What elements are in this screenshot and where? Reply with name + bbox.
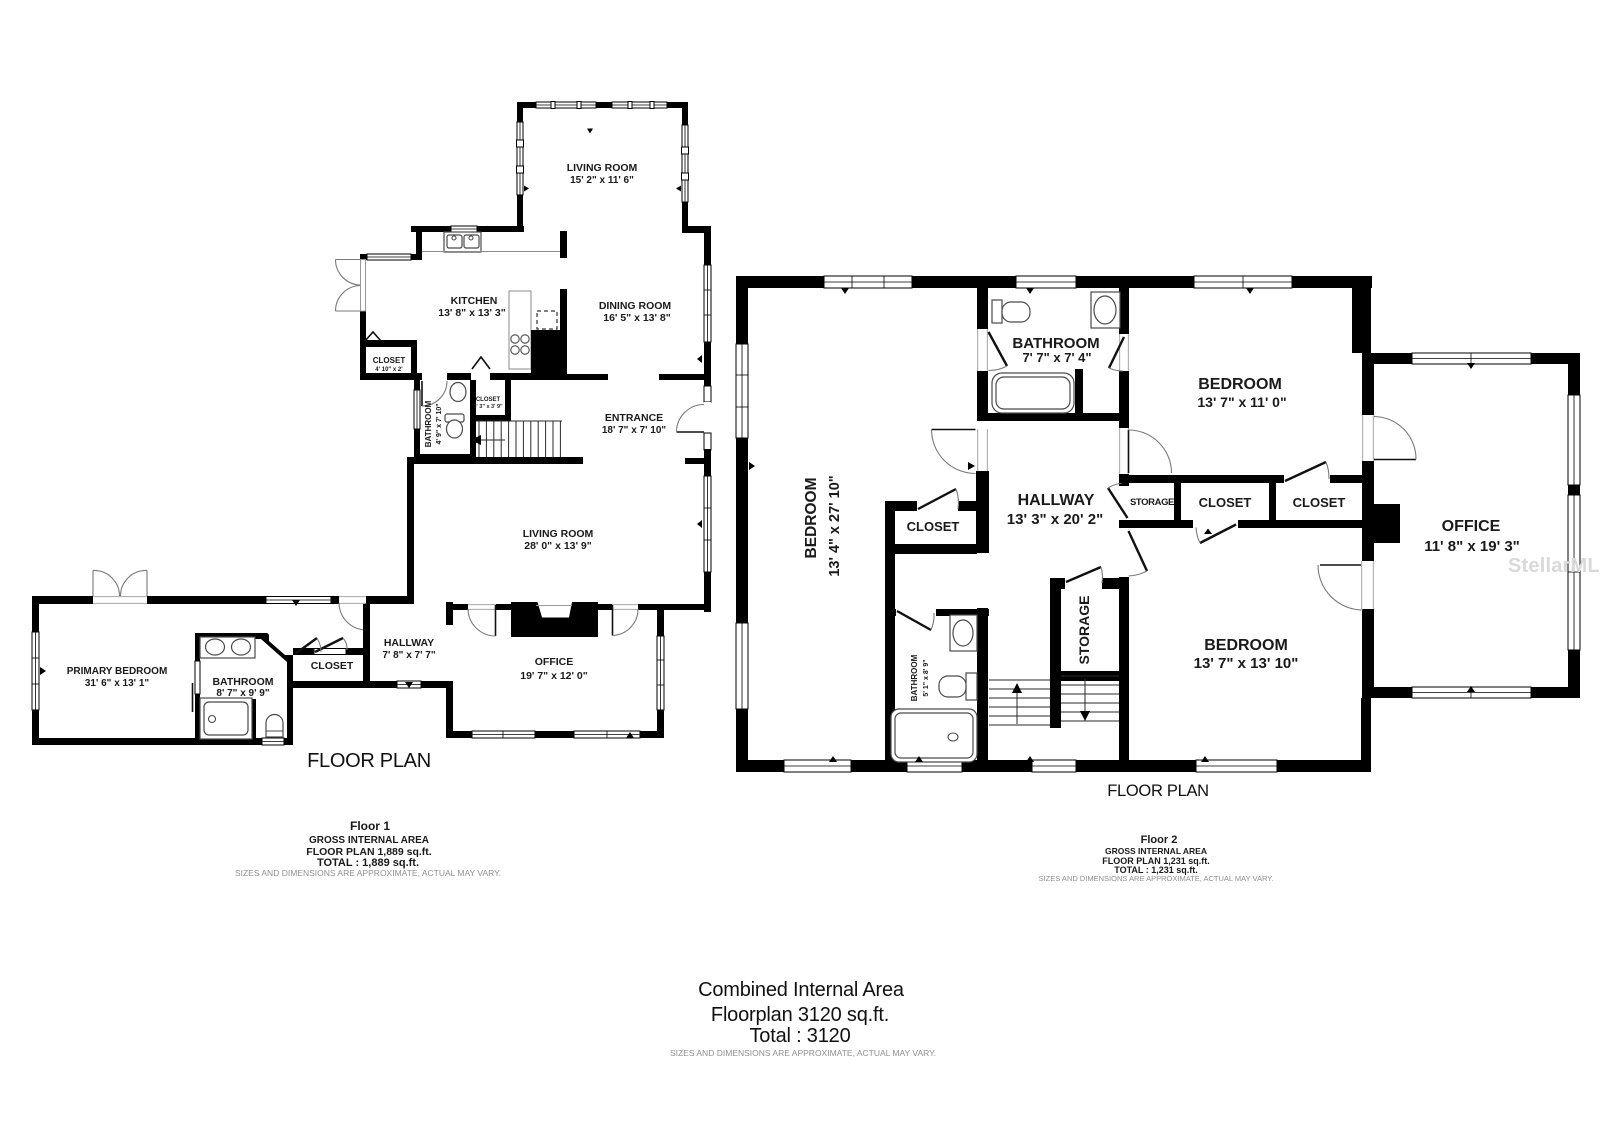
svg-text:7' 8" x 7' 7": 7' 8" x 7' 7"	[382, 650, 435, 661]
svg-text:SIZES AND DIMENSIONS ARE APPRO: SIZES AND DIMENSIONS ARE APPROXIMATE, AC…	[670, 1048, 936, 1058]
svg-text:BATHROOM: BATHROOM	[212, 676, 273, 688]
svg-text:CLOSET: CLOSET	[907, 519, 960, 534]
svg-text:Floor 2: Floor 2	[1141, 834, 1178, 846]
svg-text:BEDROOM: BEDROOM	[1204, 637, 1288, 654]
svg-text:BATHROOM: BATHROOM	[910, 654, 919, 701]
svg-text:31' 6" x 13' 1": 31' 6" x 13' 1"	[85, 678, 150, 689]
svg-text:11' 8" x 19' 3": 11' 8" x 19' 3"	[1424, 538, 1520, 555]
svg-text:15' 2" x 11' 6": 15' 2" x 11' 6"	[570, 175, 634, 186]
svg-text:13' 7" x 11' 0": 13' 7" x 11' 0"	[1197, 394, 1286, 410]
svg-text:PRIMARY BEDROOM: PRIMARY BEDROOM	[67, 666, 168, 677]
svg-text:FLOOR PLAN: FLOOR PLAN	[1107, 782, 1209, 800]
svg-text:LIVING ROOM: LIVING ROOM	[567, 162, 638, 174]
svg-text:SIZES AND DIMENSIONS ARE APPRO: SIZES AND DIMENSIONS ARE APPROXIMATE, AC…	[235, 868, 501, 878]
svg-text:8' 7" x 9' 9": 8' 7" x 9' 9"	[216, 688, 269, 699]
svg-text:StellarMLS: StellarMLS	[1508, 555, 1600, 577]
svg-text:13' 4" x 27' 10": 13' 4" x 27' 10"	[827, 475, 843, 576]
svg-text:FLOOR PLAN: FLOOR PLAN	[307, 750, 431, 772]
svg-text:19' 7" x 12' 0": 19' 7" x 12' 0"	[520, 670, 588, 682]
svg-text:CLOSET: CLOSET	[311, 660, 354, 672]
svg-text:ENTRANCE: ENTRANCE	[605, 412, 663, 424]
svg-text:13' 3" x 20' 2": 13' 3" x 20' 2"	[1007, 511, 1103, 528]
svg-text:5' 1" x 8' 9": 5' 1" x 8' 9"	[923, 659, 930, 696]
svg-text:CLOSET: CLOSET	[1293, 495, 1346, 510]
svg-text:28' 0" x 13' 9": 28' 0" x 13' 9"	[524, 540, 592, 552]
svg-text:4' 9" x 7' 10": 4' 9" x 7' 10"	[436, 403, 443, 444]
svg-text:CLOSET: CLOSET	[476, 397, 501, 403]
svg-text:OFFICE: OFFICE	[535, 656, 574, 668]
svg-text:BEDROOM: BEDROOM	[1198, 376, 1282, 393]
svg-text:CLOSET: CLOSET	[373, 356, 406, 365]
svg-text:16' 5" x 13' 8": 16' 5" x 13' 8"	[603, 312, 671, 324]
svg-text:Floor 1: Floor 1	[350, 819, 390, 833]
svg-text:4' 10" x 2': 4' 10" x 2'	[375, 367, 403, 373]
svg-text:STORAGE: STORAGE	[1130, 497, 1174, 508]
svg-text:HALLWAY: HALLWAY	[1018, 492, 1095, 509]
svg-text:CLOSET: CLOSET	[1199, 495, 1252, 510]
svg-text:Combined Internal Area: Combined Internal Area	[698, 979, 905, 1001]
svg-text:BEDROOM: BEDROOM	[803, 478, 820, 559]
svg-text:BATHROOM: BATHROOM	[424, 400, 433, 447]
svg-text:3' 3" x 3' 9": 3' 3" x 3' 9"	[473, 404, 503, 410]
svg-text:KITCHEN: KITCHEN	[451, 295, 498, 307]
svg-text:HALLWAY: HALLWAY	[384, 637, 434, 649]
svg-text:LIVING ROOM: LIVING ROOM	[523, 528, 594, 540]
svg-text:7' 7" x 7' 4": 7' 7" x 7' 4"	[1022, 350, 1091, 365]
svg-text:DINING ROOM: DINING ROOM	[599, 300, 672, 312]
svg-text:13' 7" x 13' 10": 13' 7" x 13' 10"	[1194, 655, 1299, 672]
svg-text:18' 7" x 7' 10": 18' 7" x 7' 10"	[602, 425, 667, 436]
svg-text:OFFICE: OFFICE	[1442, 518, 1501, 535]
svg-text:Total : 3120: Total : 3120	[749, 1025, 850, 1047]
svg-text:13' 8" x 13' 3": 13' 8" x 13' 3"	[438, 307, 506, 319]
svg-text:GROSS INTERNAL AREA: GROSS INTERNAL AREA	[309, 835, 429, 846]
svg-text:SIZES AND DIMENSIONS ARE APPRO: SIZES AND DIMENSIONS ARE APPROXIMATE, AC…	[1039, 874, 1274, 883]
svg-text:Floorplan 3120 sq.ft.: Floorplan 3120 sq.ft.	[711, 1004, 889, 1026]
svg-text:GROSS INTERNAL AREA: GROSS INTERNAL AREA	[1105, 846, 1207, 856]
svg-text:STORAGE: STORAGE	[1076, 596, 1092, 665]
